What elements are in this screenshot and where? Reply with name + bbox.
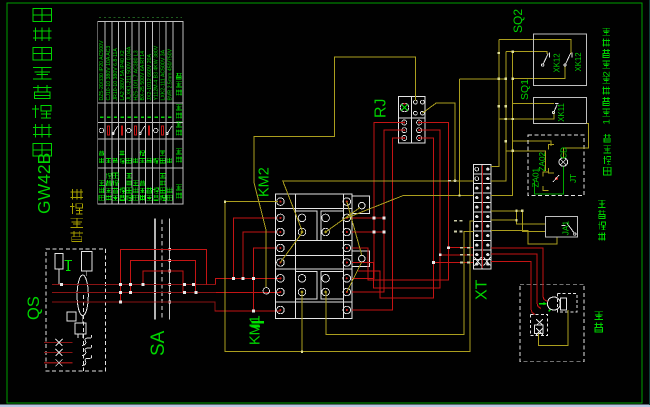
svg-text:JR10-10 380V 6.8-11A: JR10-10 380V 6.8-11A <box>113 48 119 101</box>
svg-text:LA2 380V 5A IP40 X2: LA2 380V 5A IP40 X2 <box>120 50 126 100</box>
svg-text:QS: QS <box>25 296 43 320</box>
svg-text:JX2-1012 660V 20A: JX2-1012 660V 20A <box>147 54 153 101</box>
svg-text:XT: XT <box>474 279 491 300</box>
svg-text:SQ1: SQ1 <box>519 79 531 100</box>
svg-text:1: 1 <box>601 119 612 124</box>
svg-text:BX-25 500V 6A RT14: BX-25 500V 6A RT14 <box>140 51 146 101</box>
svg-text:Y112M-4 B3 4KW 380V: Y112M-4 B3 4KW 380V <box>154 45 160 100</box>
svg-text:CD: CD <box>559 147 568 159</box>
svg-text:ZA01: ZA01 <box>531 167 540 187</box>
svg-text:KM2: KM2 <box>256 167 272 197</box>
svg-text:HZ5-10/1.7 AC380 L3: HZ5-10/1.7 AC380 L3 <box>133 50 139 100</box>
svg-text:DZ5-20/330 IP20 AC500V: DZ5-20/330 IP20 AC500V <box>99 40 105 101</box>
svg-text:SA: SA <box>148 330 169 356</box>
svg-text:GW42B: GW42B <box>34 153 54 214</box>
svg-text:KM1: KM1 <box>247 315 263 345</box>
svg-text:2: 2 <box>601 71 612 76</box>
svg-text:CJ10-10 380V 10A AC3: CJ10-10 380V 10A AC3 <box>106 46 112 101</box>
svg-text:RJ: RJ <box>373 98 390 118</box>
svg-text:SQ2: SQ2 <box>511 9 525 33</box>
svg-text:JLXK1-211 500V 0.04A: JLXK1-211 500V 0.04A <box>127 46 133 100</box>
svg-text:LXK2-111 AC500V 3A: LXK2-111 AC500V 3A <box>160 49 166 100</box>
svg-text:BVR 2.5mm 450/750V: BVR 2.5mm 450/750V <box>167 48 173 100</box>
svg-text:XK11: XK11 <box>557 103 566 122</box>
svg-text:JA1: JA1 <box>560 220 570 235</box>
svg-text:JT: JT <box>569 174 578 183</box>
svg-text:XK12: XK12 <box>553 53 562 72</box>
svg-text:XK12: XK12 <box>574 52 583 71</box>
